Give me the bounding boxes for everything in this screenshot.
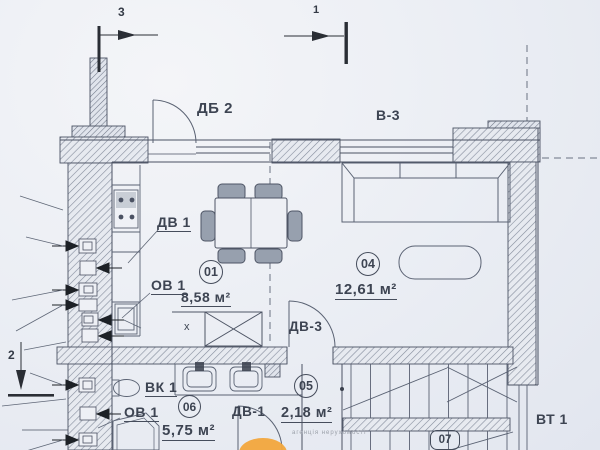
axis-label-3: 3 bbox=[118, 5, 125, 19]
hall-door-label: ДВ-3 bbox=[289, 319, 322, 334]
kitchen-door-label: ДВ 1 bbox=[157, 214, 191, 232]
sofa bbox=[342, 163, 510, 222]
room-07-number: 07 bbox=[430, 430, 460, 450]
room-04-number-text: 04 bbox=[361, 257, 375, 271]
room-01-area: 8,58 м² bbox=[181, 289, 231, 307]
room-05-number-text: 05 bbox=[299, 379, 313, 393]
room-01-number: 01 bbox=[199, 260, 223, 284]
axis-label-2: 2 bbox=[8, 348, 15, 362]
stair-vent-label: ВТ 1 bbox=[536, 411, 568, 427]
x-mark: х bbox=[184, 321, 190, 333]
room-06-area: 5,75 м² bbox=[162, 422, 215, 441]
watermark-text: агенція нерухомості bbox=[292, 430, 366, 436]
axis-dashed-lines bbox=[270, 45, 598, 345]
axis-label-1: 1 bbox=[313, 4, 320, 16]
living-window-label: В-3 bbox=[376, 107, 400, 123]
kitchen-counter bbox=[112, 165, 140, 336]
oval-table bbox=[399, 246, 481, 279]
room-05-area: 2,18 м² bbox=[281, 405, 332, 423]
room-01-number-text: 01 bbox=[204, 265, 218, 279]
balcony-door-label: ДБ 2 bbox=[197, 100, 233, 117]
axis-marks bbox=[8, 22, 348, 397]
room-04-number: 04 bbox=[356, 252, 380, 276]
room-05-number: 05 bbox=[294, 374, 318, 398]
vent-channel-label: ВК 1 bbox=[145, 379, 177, 397]
room-04-area: 12,61 м² bbox=[335, 281, 397, 300]
dining-set bbox=[201, 184, 302, 263]
floorplan-scan: 3 1 2 ДБ 2 В-3 ДВ 1 ОВ 1 ВК 1 ОВ 1 ДВ-1 … bbox=[0, 0, 600, 450]
watermark-orange-blob bbox=[239, 438, 287, 450]
room-06-number: 06 bbox=[178, 395, 201, 418]
bath-window-label: ОВ 1 bbox=[124, 404, 159, 422]
balcony-door-arc bbox=[153, 100, 196, 143]
room-07-number-text: 07 bbox=[439, 434, 452, 446]
room-06-number-text: 06 bbox=[183, 400, 196, 414]
toilet bbox=[114, 380, 140, 397]
bath-door-label: ДВ-1 bbox=[232, 404, 265, 419]
